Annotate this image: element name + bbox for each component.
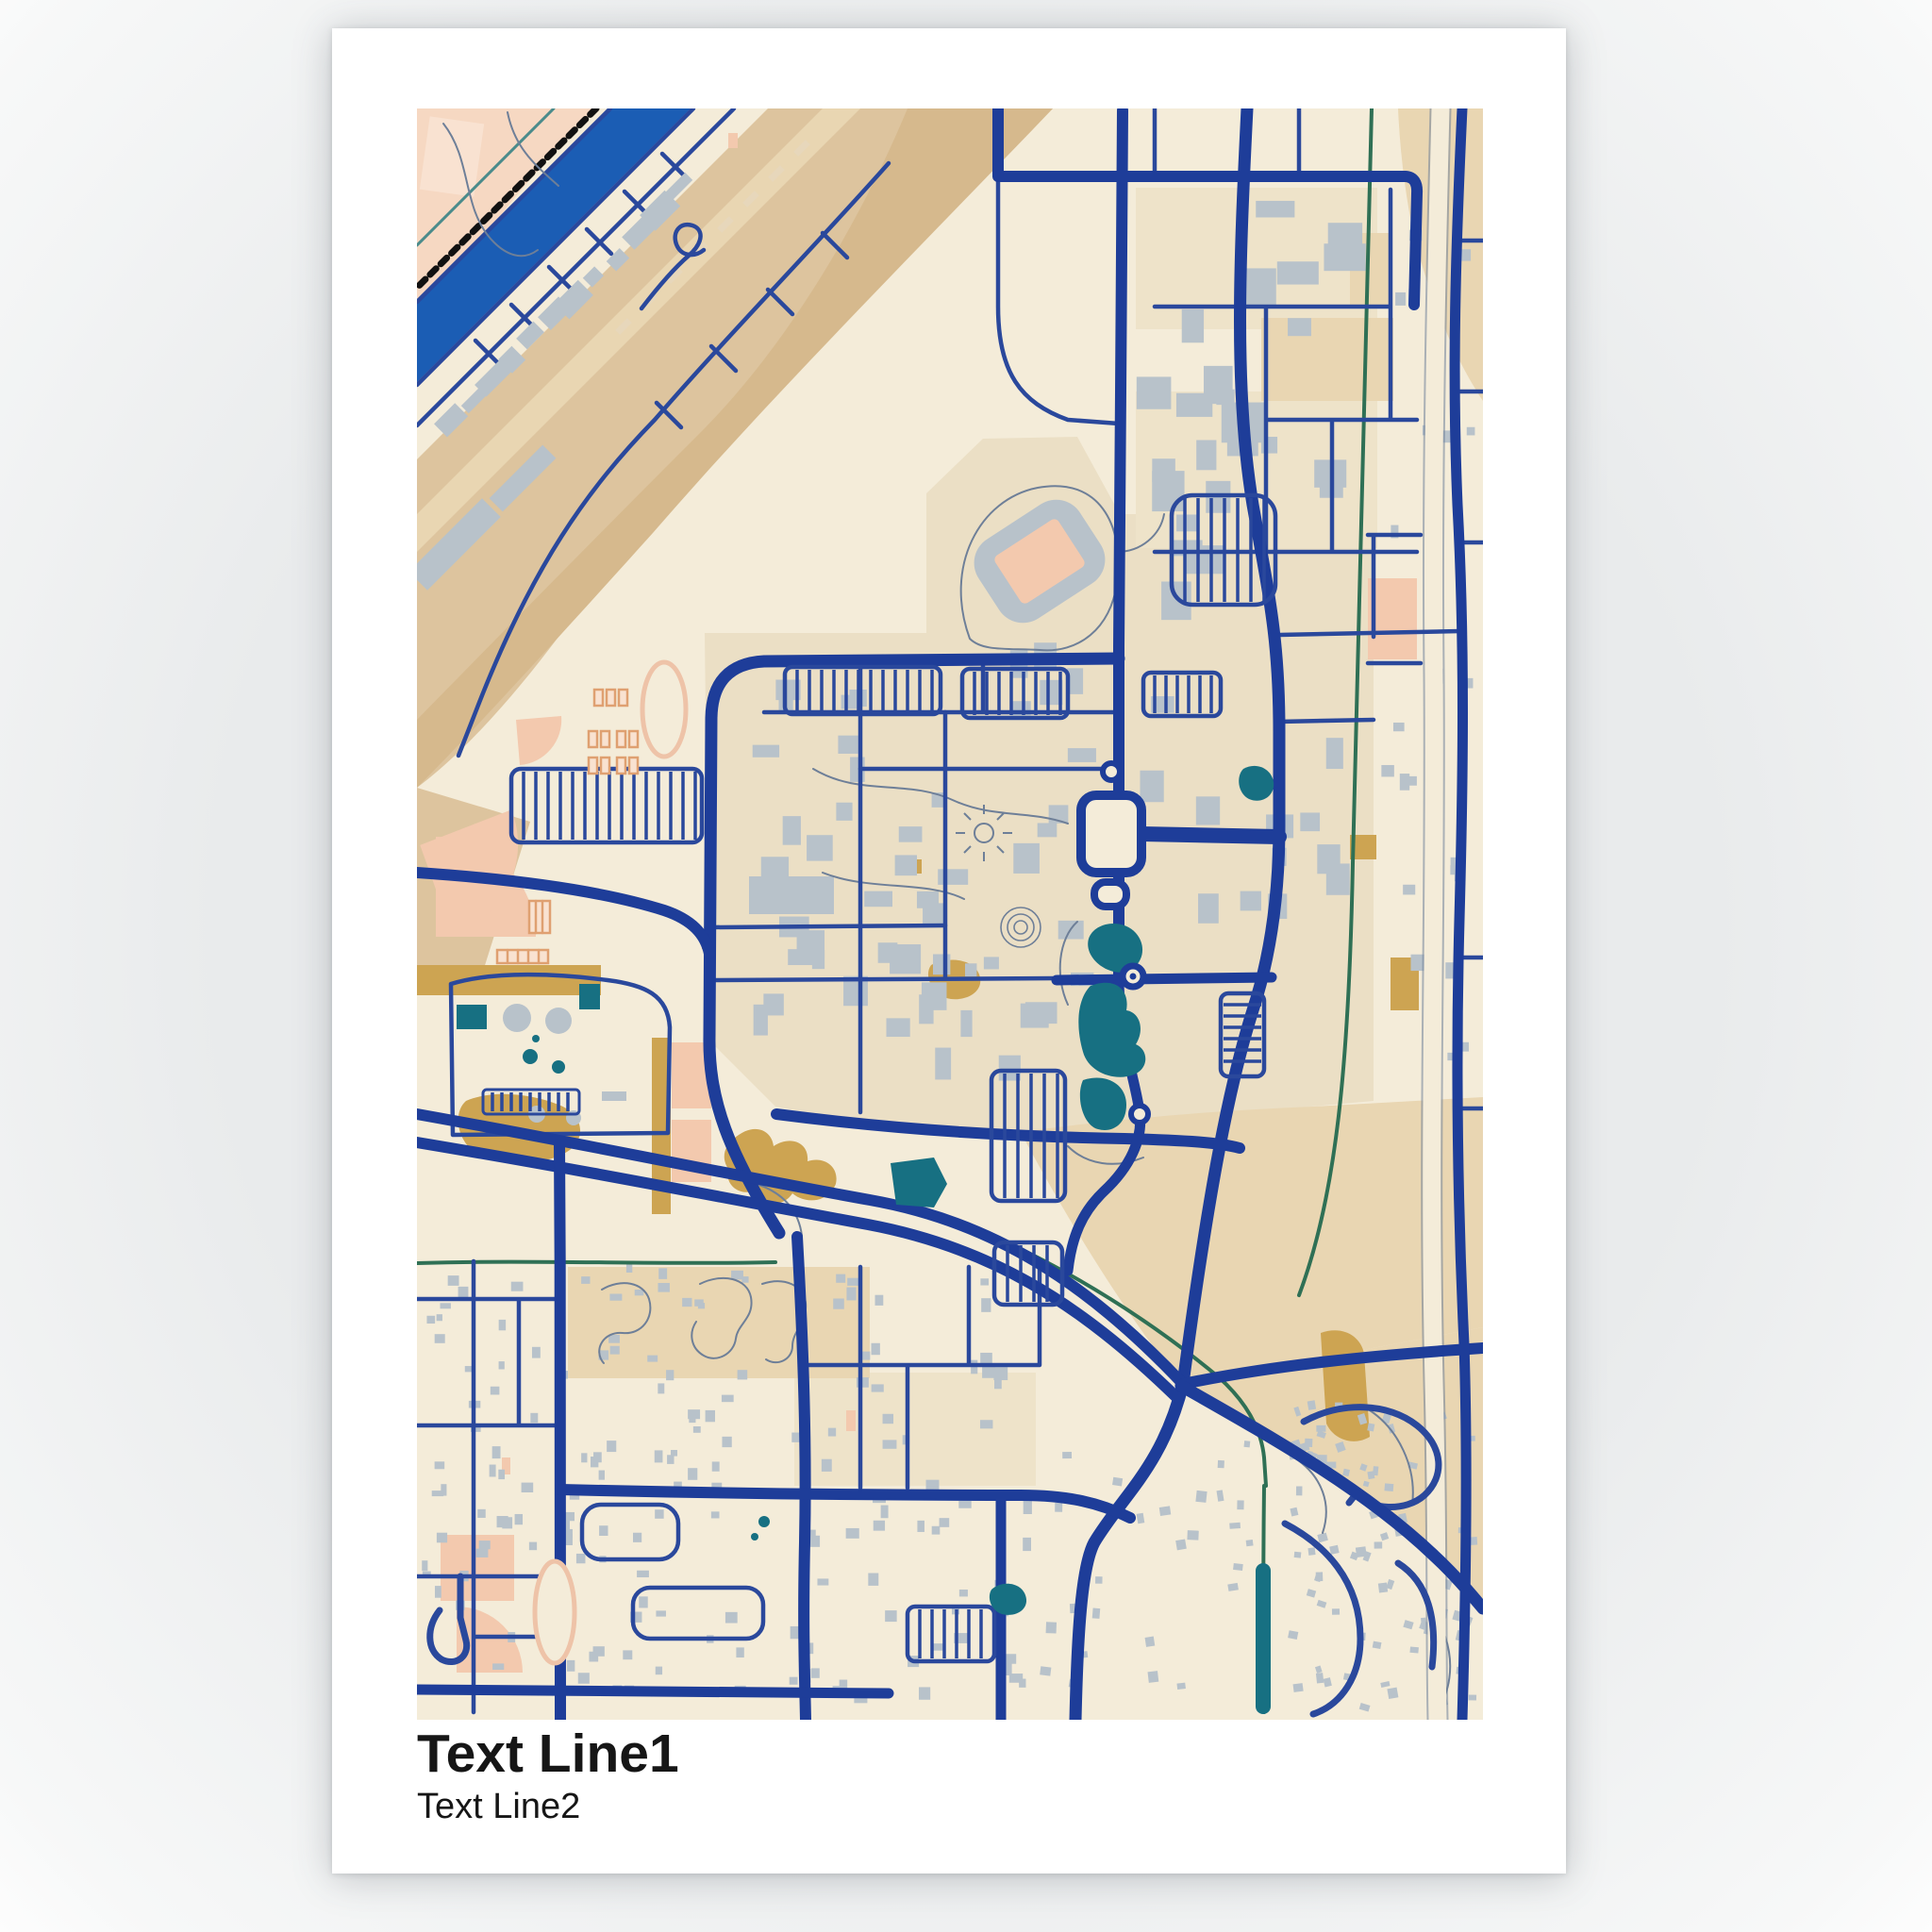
poster-subtitle: Text Line2: [417, 1787, 679, 1828]
map-art: [417, 108, 1483, 1720]
caption-block: Text Line1 Text Line2: [417, 1724, 679, 1828]
poster-title: Text Line1: [417, 1724, 679, 1785]
map-frame: [417, 108, 1483, 1720]
poster: Text Line1 Text Line2: [332, 28, 1566, 1874]
